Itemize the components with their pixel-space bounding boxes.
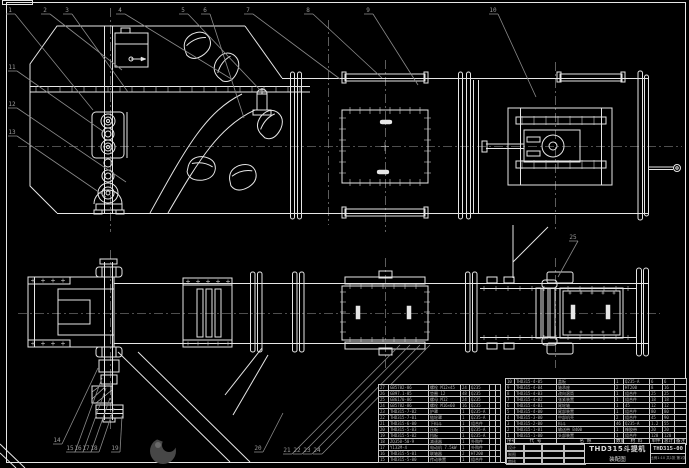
title-block-sign-grid: 设计制图审核 [505,443,585,464]
bolt-ticks [31,86,628,346]
sign-empty-cell [564,444,586,451]
bom-cell: 传动装置 [429,457,461,463]
inspection-door-plan [342,271,428,355]
motor-plan [96,405,123,422]
bom-cell: 组合件 [470,457,490,463]
sign-empty-cell [542,451,564,458]
balloon-number: 10 [489,7,497,14]
sign-empty-cell [542,458,564,465]
balloon-number: 17 [82,445,90,452]
balloon-number: 25 [569,234,577,241]
sheet-note: 比例1:10 共1张 第1张 [651,454,685,463]
product-title: THD315斗提机 [589,444,646,454]
bom-cell [496,457,501,463]
sign-empty-cell [524,444,542,451]
balloon-number: 9 [366,7,370,14]
tail-takeup-elevation [474,71,681,220]
balloon-number: 21 [283,447,291,454]
balloon-number: 23 [303,447,311,454]
balloon-number: 7 [246,7,250,14]
balloon-number: 6 [203,7,207,14]
joint-box-plan [183,278,232,347]
centerlines [18,8,682,430]
balloon-number: 11 [8,64,16,71]
balloon-number: 18 [90,445,98,452]
elevation-view [30,26,681,220]
sign-label-cell: 审核 [506,458,524,465]
parts-list-left: 27GB5782-86螺栓 M12×4524Q23526GB97.1-85垫圈 … [378,384,501,463]
casing-flanges [291,72,471,219]
sign-empty-cell [564,458,586,465]
sign-empty-cell [524,458,542,465]
balloon-number: 4 [118,7,122,14]
sign-label-cell: 制图 [506,451,524,458]
bom-cell: THD315-5-00 [389,457,429,463]
balloon-number: 1 [8,7,12,14]
sign-empty-cell [524,451,542,458]
balloon-number: 2 [43,7,47,14]
head-drive-plan [28,259,123,422]
drawing-number: THD315-00 [651,444,685,454]
balloon-number: 24 [313,447,321,454]
bucket-belt [150,29,288,213]
balloon-number: 3 [65,7,69,14]
ink-stamp [150,436,176,464]
balloon-number: 16 [74,445,82,452]
bom-cell: 1 [461,457,470,463]
balloon-number: 12 [8,101,16,108]
balloon-number: 19 [111,445,119,452]
doc-type: 装配图 [609,455,626,463]
balloon-number: 15 [66,445,74,452]
sign-empty-cell [542,444,564,451]
inspection-door-elevation [342,72,428,218]
bom-cell: 15 [379,457,389,463]
balloon-number: 5 [181,7,185,14]
bom-row: 15THD315-5-00传动装置1组合件 [379,457,501,463]
drawing-sheet: 1234567891011121314151617181920212223242… [0,0,689,468]
balloon-number: 13 [8,129,16,136]
parts-list-right: 10THD315-4-05盖板1Q235-A669THD315-4-04轴承座2… [505,378,687,445]
title-block-number: THD315-00 比例1:10 共1张 第1张 [650,443,686,464]
title-block-title: THD315斗提机 装配图 [584,443,651,464]
balloon-number: 22 [293,447,301,454]
tail-takeup-plan [466,268,649,356]
balloon-number: 20 [254,445,262,452]
balloon-number: 8 [306,7,310,14]
sign-label-cell: 设计 [506,444,524,451]
balloon-number: 14 [53,437,61,444]
sign-empty-cell [564,451,586,458]
